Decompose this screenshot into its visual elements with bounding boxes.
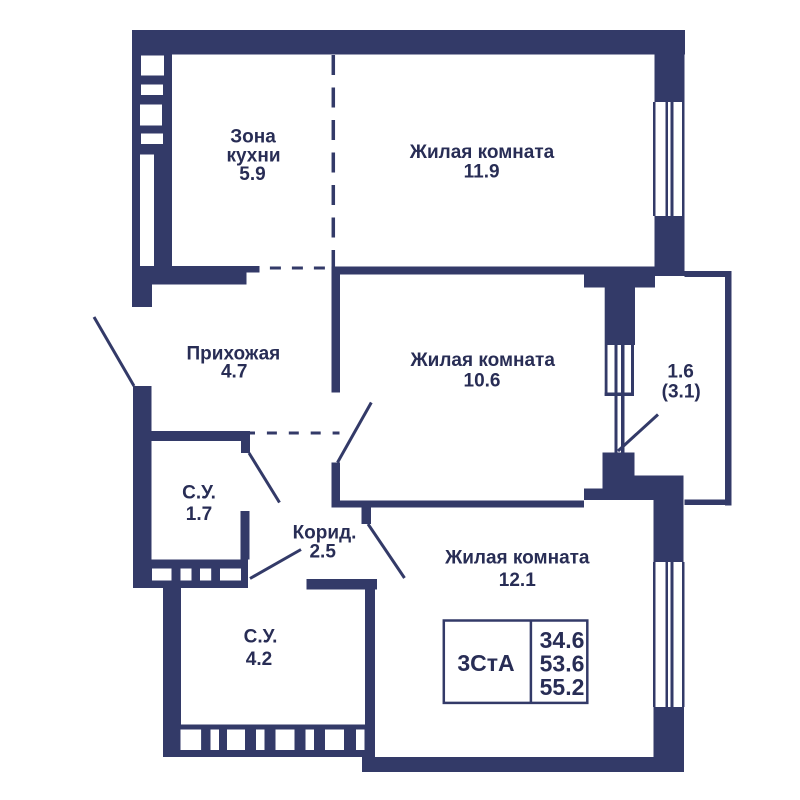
svg-text:Корид.: Корид. [293, 522, 357, 543]
svg-text:4.2: 4.2 [246, 649, 272, 670]
svg-text:4.7: 4.7 [221, 361, 247, 382]
svg-text:10.6: 10.6 [464, 371, 501, 392]
svg-text:1.6: 1.6 [667, 362, 693, 383]
svg-text:3СтА: 3СтА [457, 650, 514, 676]
svg-text:5.9: 5.9 [239, 164, 265, 185]
svg-text:34.6: 34.6 [540, 627, 585, 653]
svg-text:С.У.: С.У. [182, 483, 216, 504]
svg-text:Жилая комната: Жилая комната [409, 142, 555, 163]
svg-text:(3.1): (3.1) [662, 382, 701, 403]
svg-text:Жилая комната: Жилая комната [409, 350, 555, 371]
svg-text:11.9: 11.9 [464, 162, 500, 183]
svg-text:1.7: 1.7 [186, 504, 212, 525]
svg-text:55.2: 55.2 [540, 674, 585, 700]
svg-text:53.6: 53.6 [540, 650, 585, 676]
svg-text:12.1: 12.1 [499, 570, 536, 591]
svg-text:С.У.: С.У. [244, 627, 278, 648]
svg-text:Жилая комната: Жилая комната [444, 548, 590, 569]
svg-text:2.5: 2.5 [309, 542, 336, 563]
